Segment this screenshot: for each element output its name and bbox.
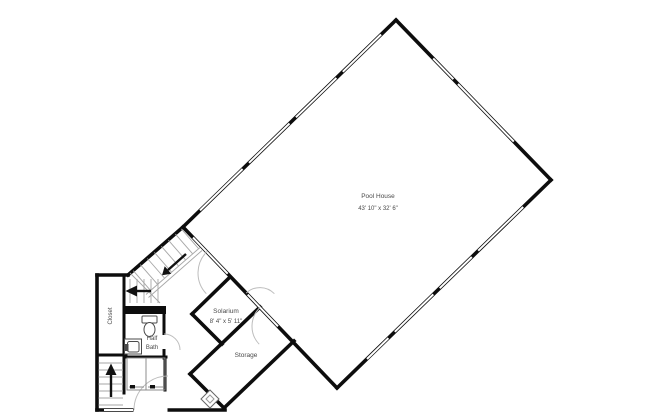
- half-bath-label-line1: Half: [147, 336, 158, 342]
- solarium-dimensions: 8' 4" x 5' 11": [210, 319, 242, 325]
- stair-stringer: [149, 251, 203, 298]
- closet-label: Closet: [108, 307, 114, 324]
- window: [200, 169, 243, 210]
- pool-house-label: Pool House: [361, 193, 395, 200]
- cell-door-mark: [130, 385, 135, 389]
- sink-icon: [125, 339, 142, 354]
- window: [440, 257, 472, 288]
- window: [458, 84, 514, 142]
- door-arc-pool-house: [246, 288, 274, 294]
- window: [249, 124, 290, 163]
- floor-plan-svg: Pool House 43' 10" x 32' 6" Solarium 8' …: [0, 0, 650, 420]
- arrow-up-icon: [106, 364, 117, 398]
- door-arc-hall: [198, 251, 207, 293]
- window: [367, 338, 388, 359]
- toilet-icon: [142, 316, 157, 337]
- window: [296, 78, 337, 117]
- half-bath-label-line2: Bath: [146, 345, 158, 351]
- floor-plan: Pool House 43' 10" x 32' 6" Solarium 8' …: [0, 0, 650, 420]
- solarium-label: Solarium: [213, 308, 239, 315]
- storage-label: Storage: [235, 352, 258, 359]
- window: [395, 294, 434, 331]
- cell-door-mark: [150, 385, 155, 389]
- storage-wall-nw: [190, 307, 260, 374]
- window: [343, 35, 381, 72]
- pool-house-dimensions: 43' 10" x 32' 6": [358, 206, 398, 212]
- windows: [104, 35, 523, 411]
- window: [433, 58, 453, 79]
- window: [478, 207, 523, 251]
- stair-landing-wall: [124, 306, 166, 314]
- door-arc-entry: [134, 376, 168, 410]
- water-heater-icon: [201, 390, 219, 408]
- storage-cells: [127, 358, 165, 390]
